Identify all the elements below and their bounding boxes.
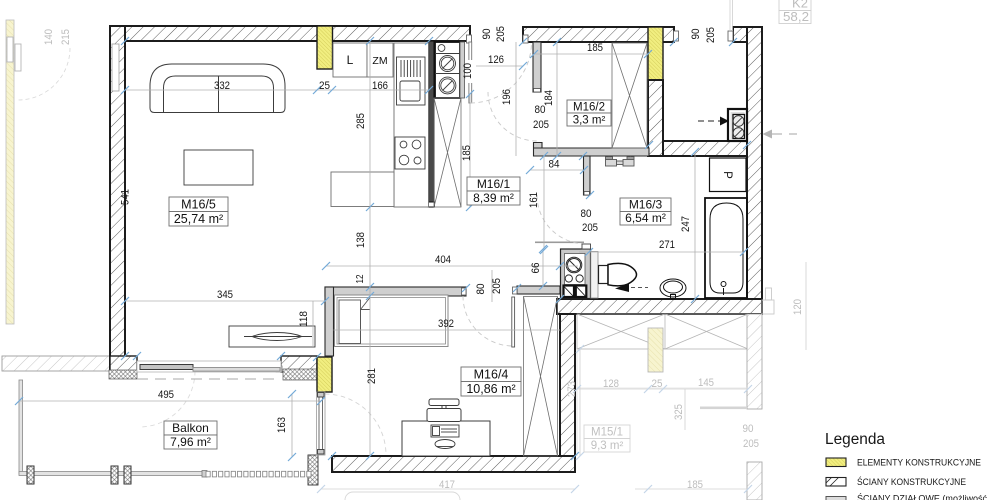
svg-text:ŚCIANY DZIAŁOWE (możliwość: ŚCIANY DZIAŁOWE (możliwość [857,493,988,500]
svg-text:205: 205 [582,222,598,234]
svg-text:90: 90 [743,423,754,435]
svg-text:345: 345 [217,289,233,301]
svg-text:P: P [721,171,733,179]
svg-text:66: 66 [530,263,542,274]
svg-text:10,86 m²: 10,86 m² [466,382,515,396]
svg-text:281: 281 [366,368,378,384]
svg-text:58,2: 58,2 [783,9,809,24]
svg-text:Legenda: Legenda [825,431,885,448]
svg-text:25: 25 [652,378,663,390]
svg-text:90: 90 [690,29,702,40]
svg-text:84: 84 [549,159,560,171]
svg-text:417: 417 [439,479,455,491]
svg-text:126: 126 [488,54,504,66]
svg-text:185: 185 [587,42,603,54]
svg-text:Balkon: Balkon [172,421,209,435]
svg-text:3,3 m²: 3,3 m² [573,115,606,127]
svg-text:161: 161 [528,192,540,208]
svg-text:163: 163 [276,417,288,433]
svg-text:138: 138 [355,232,367,248]
svg-text:M16/3: M16/3 [629,198,663,212]
svg-text:80: 80 [535,104,546,116]
svg-text:404: 404 [435,254,451,266]
svg-text:495: 495 [158,389,174,401]
svg-text:6,54 m²: 6,54 m² [625,211,666,225]
svg-text:M16/1: M16/1 [477,177,511,191]
svg-text:M16/2: M16/2 [573,102,605,114]
svg-text:205: 205 [743,438,759,450]
svg-text:M16/5: M16/5 [181,198,216,212]
svg-text:ŚCIANY KONSTRUKCYJNE: ŚCIANY KONSTRUKCYJNE [857,476,966,487]
svg-text:M15/1: M15/1 [591,427,623,439]
svg-text:128: 128 [603,378,619,390]
svg-text:25,74 m²: 25,74 m² [174,212,223,226]
svg-text:118: 118 [298,311,310,327]
svg-text:ZM: ZM [372,55,387,67]
svg-text:196: 196 [501,89,513,105]
svg-text:205: 205 [495,26,507,42]
svg-text:ELEMENTY KONSTRUKCYJNE: ELEMENTY KONSTRUKCYJNE [857,458,981,468]
svg-text:25: 25 [319,80,330,92]
svg-text:185: 185 [687,479,703,491]
svg-text:80: 80 [475,284,487,295]
svg-text:145: 145 [698,377,714,389]
svg-text:325: 325 [673,404,685,420]
svg-text:90: 90 [481,29,493,40]
svg-text:205: 205 [705,27,717,43]
svg-text:273: 273 [566,381,578,397]
svg-text:100: 100 [462,63,474,79]
svg-text:541: 541 [120,189,132,205]
svg-text:185: 185 [461,145,473,161]
svg-text:9,3 m²: 9,3 m² [591,440,624,452]
svg-text:8,39 m²: 8,39 m² [473,191,514,205]
svg-text:L: L [347,53,354,67]
svg-text:205: 205 [533,119,549,131]
svg-text:205: 205 [491,278,503,294]
svg-text:247: 247 [680,216,692,232]
svg-text:80: 80 [581,208,592,220]
svg-text:392: 392 [438,318,454,330]
svg-text:332: 332 [214,80,230,92]
svg-text:12: 12 [355,274,366,283]
svg-text:7,96 m²: 7,96 m² [170,435,211,449]
svg-text:215: 215 [60,29,72,45]
svg-text:140: 140 [43,29,55,45]
svg-text:M16/4: M16/4 [474,368,509,382]
svg-text:271: 271 [659,239,675,251]
svg-text:166: 166 [372,80,388,92]
svg-text:120: 120 [792,299,804,315]
svg-text:285: 285 [355,113,367,129]
